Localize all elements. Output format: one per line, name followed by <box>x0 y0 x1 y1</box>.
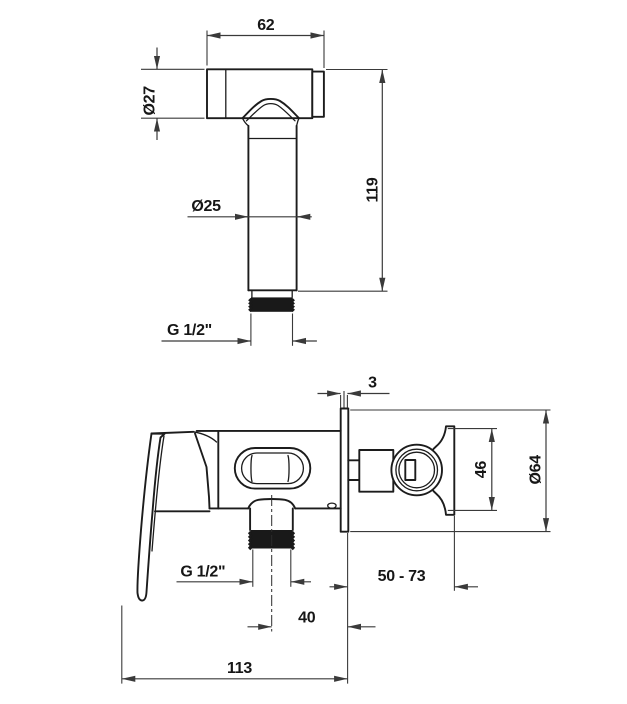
sprayer-head <box>207 69 312 118</box>
spout-window <box>235 448 310 489</box>
mixer-drawing: 3 46 Ø64 G 1/2" 50 - 73 <box>122 375 551 684</box>
dim-label-46: 46 <box>473 461 490 479</box>
sprayer-head-cap <box>312 72 324 117</box>
dim-label-40: 40 <box>298 609 316 626</box>
dim-plate-thickness: 3 <box>318 375 390 408</box>
wall-plate <box>341 409 349 532</box>
dim-depth-range: 50 - 73 <box>330 516 479 684</box>
dim-label-3: 3 <box>368 375 377 392</box>
dim-label-50-73: 50 - 73 <box>378 568 426 585</box>
dim-handle-diameter: Ø25 <box>188 198 312 217</box>
sprayer-handle <box>248 126 296 290</box>
dim-outlet-offset: 40 <box>248 609 376 627</box>
dim-head-diameter: Ø27 <box>141 48 205 141</box>
outlet <box>248 495 295 632</box>
sprayer-thread <box>250 290 294 312</box>
dim-label-62: 62 <box>257 17 275 34</box>
cartridge-housing <box>359 450 393 492</box>
dim-label-d27: Ø27 <box>142 86 159 116</box>
technical-drawing-page: 62 Ø27 Ø25 119 <box>0 0 627 704</box>
dim-label-d64: Ø64 <box>528 455 545 485</box>
mixer-wall-assembly <box>341 409 455 532</box>
dim-handset-thread: G 1/2" <box>162 314 317 346</box>
handset-drawing: 62 Ø27 Ø25 119 <box>141 17 388 346</box>
dim-head-width: 62 <box>207 17 324 68</box>
dim-label-thread-top: G 1/2" <box>167 322 212 339</box>
dim-plate-diameter: Ø64 <box>528 410 547 532</box>
dim-label-113: 113 <box>227 660 252 677</box>
dim-label-119: 119 <box>365 177 382 202</box>
dim-mixer-thread: G 1/2" <box>177 550 312 587</box>
handset-part <box>207 69 324 311</box>
dim-label-thread-bottom: G 1/2" <box>180 563 225 580</box>
dim-label-d25: Ø25 <box>191 198 221 215</box>
spindle-flat <box>405 460 415 480</box>
technical-drawing: 62 Ø27 Ø25 119 <box>0 0 627 704</box>
